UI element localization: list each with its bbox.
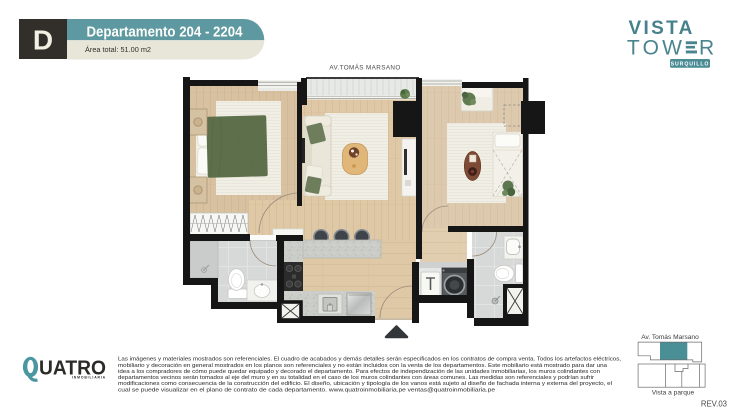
svg-text:R: R bbox=[699, 36, 714, 59]
svg-text:Vista a parque: Vista a parque bbox=[652, 390, 695, 397]
svg-text:Área total: 51.00 m2: Área total: 51.00 m2 bbox=[85, 45, 151, 54]
svg-text:Av. Tomás Marsano: Av. Tomás Marsano bbox=[641, 334, 699, 341]
svg-text:modificaciones como consecuenc: modificaciones como consecuencia de la c… bbox=[118, 381, 612, 387]
svg-text:Las imágenes y materiales most: Las imágenes y materiales mostrados son … bbox=[118, 357, 622, 363]
svg-text:mobiliario y decoración en gen: mobiliario y decoración en general mostr… bbox=[118, 363, 607, 369]
svg-text:cual se puede visualizar en el: cual se puede visualizar en el plano de … bbox=[118, 387, 495, 393]
svg-text:SURQUILLO: SURQUILLO bbox=[671, 62, 710, 68]
svg-text:REV.03: REV.03 bbox=[701, 400, 727, 409]
svg-text:idea a los compradores de cómo: idea a los compradores de cómo puede que… bbox=[118, 369, 600, 375]
svg-text:INMOBILIARIA: INMOBILIARIA bbox=[72, 375, 106, 380]
svg-text:AV.TOMÁS MARSANO: AV.TOMÁS MARSANO bbox=[329, 63, 400, 72]
svg-text:departamentos vecinos serán to: departamentos vecinos serán tomados al e… bbox=[118, 375, 594, 381]
svg-text:Departamento 204 - 2204: Departamento 204 - 2204 bbox=[87, 25, 243, 41]
svg-text:D: D bbox=[33, 25, 53, 56]
svg-text:TOW: TOW bbox=[627, 36, 684, 59]
